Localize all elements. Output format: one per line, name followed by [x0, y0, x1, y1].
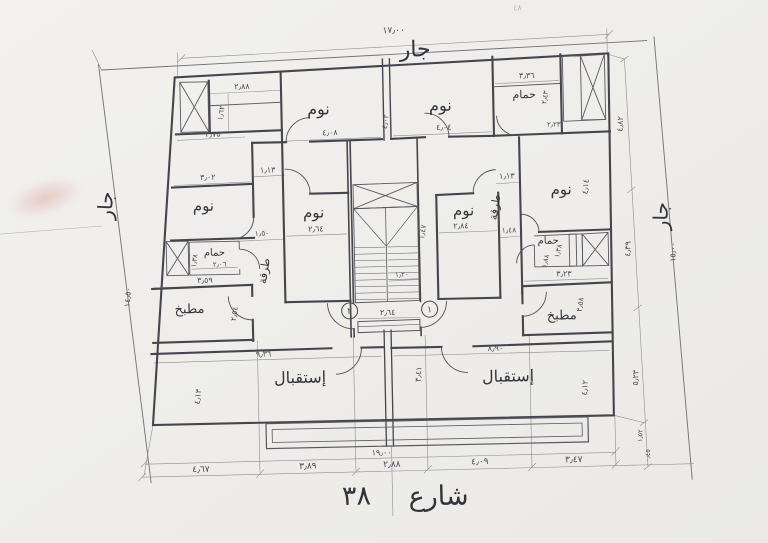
- room-label-kitchen-left: مطبخ: [174, 302, 204, 318]
- dim-hall-right: ١٫١٣: [499, 171, 515, 180]
- dim-right-boundary: ١٥٫٠٠: [668, 242, 677, 262]
- room-label-reception-left: إستقبال: [274, 367, 326, 387]
- dim-center-wall: ٤٫٠٢: [380, 114, 391, 129]
- dim-bottom-4: ٤٫٠٩: [471, 457, 489, 467]
- dim-bedroom-left-width: ٣٫٠٢: [200, 173, 216, 182]
- dim-bottom-2: ٣٫٨٩: [299, 462, 317, 472]
- dim-entry-width: ٢٫٦٤: [380, 308, 396, 317]
- street-label-number: ٣٨: [342, 480, 372, 512]
- room-label-reception-right: إستقبال: [482, 366, 534, 386]
- dim-right-5: ٠٫٤٥: [644, 449, 652, 462]
- dim-closet: ٢٫٧٥: [205, 130, 221, 139]
- dim-corridor-right: ١٫٤٧: [417, 224, 428, 240]
- room-label-bedroom-mid-left: نوم: [303, 203, 325, 221]
- dim-kitchen-left-width: ٣٫٥٩: [197, 276, 213, 285]
- hall-label-right: طرقة: [487, 193, 504, 221]
- scan-page: ١٧٫٠٠جارجار١٤٫٥٠جار١٥٫٠٠٤٫٨٢٤٫٣٩٥٫٢٣١٫٥٢…: [0, 0, 768, 543]
- dim-bedroom-mid-left: ٢٫٦٤: [308, 224, 324, 233]
- dim-kitchen-left-depth: ٢٫٥٤: [229, 306, 240, 322]
- room-label-bedroom-right: نوم: [550, 180, 572, 198]
- dim-bedroom-top-left: ٤٫٠٨: [322, 128, 338, 137]
- dim-dressing-depth: ١٫٦٢: [215, 105, 226, 121]
- dim-bath-left-depth: ١٫٣٨: [190, 253, 200, 268]
- room-label-bath-top-right: حمام: [512, 88, 536, 101]
- dim-kitchen-right-width: ٣٫٢٣: [556, 269, 572, 278]
- dim-right-4: ١٫٥٢: [636, 429, 644, 442]
- room-label-bedroom-top-left: نوم: [307, 99, 330, 119]
- hall-label-left: طرقة: [256, 257, 273, 285]
- dim-right-2: ٤٫٣٩: [623, 241, 632, 257]
- dim-stair-flight: ١٫٢٠: [395, 271, 409, 279]
- scan-mark-top: ٤٨: [513, 3, 522, 12]
- dim-reception-center: ٣٫٤١: [413, 366, 423, 382]
- dim-bath-left: ٢٫٠٦: [213, 260, 227, 268]
- street-label-name: شارع: [408, 480, 469, 512]
- dim-bath-hall-right: ١٫٤٨: [502, 225, 517, 234]
- dim-total-bottom: ١٩٫٠٠: [372, 448, 392, 457]
- dim-bottom-5: ٣٫٤٧: [565, 455, 583, 465]
- room-label-kitchen-right: مطبخ: [547, 308, 577, 324]
- dim-reception-right-depth: ٤٫١٢: [580, 380, 590, 396]
- dim-dressing-width: ٢٫٨٨: [234, 82, 250, 91]
- unit-number-2: ٢: [347, 307, 352, 317]
- dim-bath-right-depth: ١٫٣٨: [553, 243, 564, 258]
- dim-bath-top-right-depth: ٢٫٤٣: [540, 90, 550, 105]
- unit-number-1: ١: [427, 305, 432, 315]
- room-label-bedroom-left: نوم: [193, 197, 215, 215]
- dim-bottom-1: ٤٫٦٧: [192, 465, 210, 475]
- dim-total-top: ١٧٫٠٠: [383, 26, 405, 36]
- room-label-bath-left: حمام: [204, 247, 225, 258]
- room-label-bedroom-top-right: نوم: [429, 96, 452, 116]
- dim-bedroom-right-depth: ٤٫١٤: [580, 179, 590, 195]
- dim-right-1: ٤٫٨٢: [616, 116, 625, 132]
- dim-shaft-top-right: ٢٫٢٣: [547, 120, 561, 128]
- dim-bedroom-top-right: ٤٫٠٤: [436, 123, 452, 132]
- neighbor-label-top: جار: [398, 37, 430, 63]
- dim-kitchen-right-depth: ٢٫٥٨: [575, 297, 586, 313]
- dim-reception-left-width: ٩٫٣٦: [256, 350, 272, 359]
- dim-bottom-3: ٢٫٨٨: [383, 460, 401, 470]
- dim-left-boundary: ١٤٫٥٠: [123, 287, 134, 307]
- plan-group: ١٧٫٠٠جارجار١٤٫٥٠جار١٥٫٠٠٤٫٨٢٤٫٣٩٥٫٢٣١٫٥٢…: [0, 0, 695, 524]
- dim-right-3: ٥٫٢٣: [631, 369, 641, 385]
- room-label-bedroom-mid-right: نوم: [453, 201, 475, 219]
- neighbor-label-left: جار: [93, 191, 118, 221]
- dim-corridor-left: ١٫٥٠: [255, 229, 270, 238]
- floor-plan: ١٧٫٠٠جارجار١٤٫٥٠جار١٥٫٠٠٤٫٨٢٤٫٣٩٥٫٢٣١٫٥٢…: [0, 0, 768, 543]
- dim-hall-left: ١٫١٣: [260, 165, 276, 174]
- dim-reception-left-depth: ٤٫١٣: [193, 388, 204, 405]
- dim-bath-top-right: ٣٫٣٦: [519, 71, 535, 80]
- neighbor-label-right: جار: [649, 202, 673, 231]
- dim-bedroom-mid-right: ٢٫٨٤: [453, 221, 469, 230]
- dim-reception-right-width: ٨٫٩٠: [488, 344, 504, 353]
